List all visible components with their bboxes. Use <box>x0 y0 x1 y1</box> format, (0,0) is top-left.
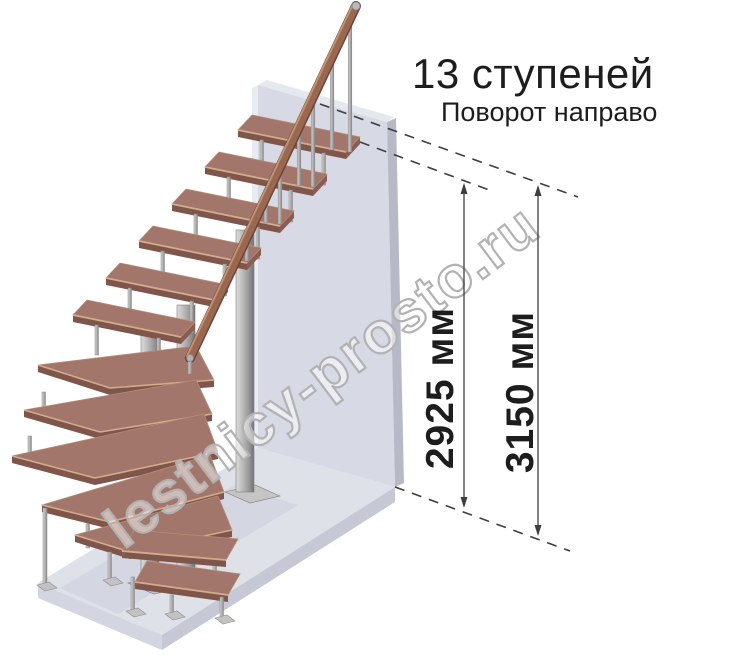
dimension-label-height-to-top-step: 2925 мм <box>419 307 463 469</box>
page-subtitle: Поворот направо <box>441 98 657 126</box>
page-title: 13 ступеней <box>412 52 654 96</box>
dimension-label-total-height: 3150 мм <box>499 311 543 473</box>
product-image: lestnicy-prosto.ru 13 ступеней Поворот н… <box>0 0 744 655</box>
